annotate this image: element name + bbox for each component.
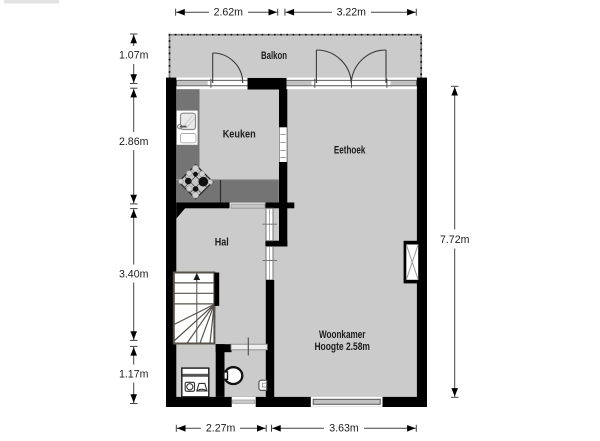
svg-text:2.27m: 2.27m	[206, 423, 236, 435]
svg-text:1.17m: 1.17m	[119, 368, 149, 380]
svg-text:Hoogte 2.58m: Hoogte 2.58m	[314, 341, 370, 353]
svg-text:2.86m: 2.86m	[119, 136, 149, 148]
svg-text:7.72m: 7.72m	[440, 234, 470, 246]
svg-text:Hal: Hal	[215, 237, 229, 249]
svg-text:Keuken: Keuken	[223, 129, 256, 141]
svg-text:Woonkamer: Woonkamer	[319, 329, 366, 341]
svg-text:1.07m: 1.07m	[119, 50, 149, 62]
svg-text:Eethoek: Eethoek	[334, 144, 366, 156]
svg-text:3.22m: 3.22m	[337, 6, 367, 18]
svg-text:Balkon: Balkon	[261, 50, 287, 62]
svg-text:2.62m: 2.62m	[214, 6, 244, 18]
svg-text:3.40m: 3.40m	[119, 268, 149, 280]
svg-text:3.63m: 3.63m	[329, 423, 359, 435]
